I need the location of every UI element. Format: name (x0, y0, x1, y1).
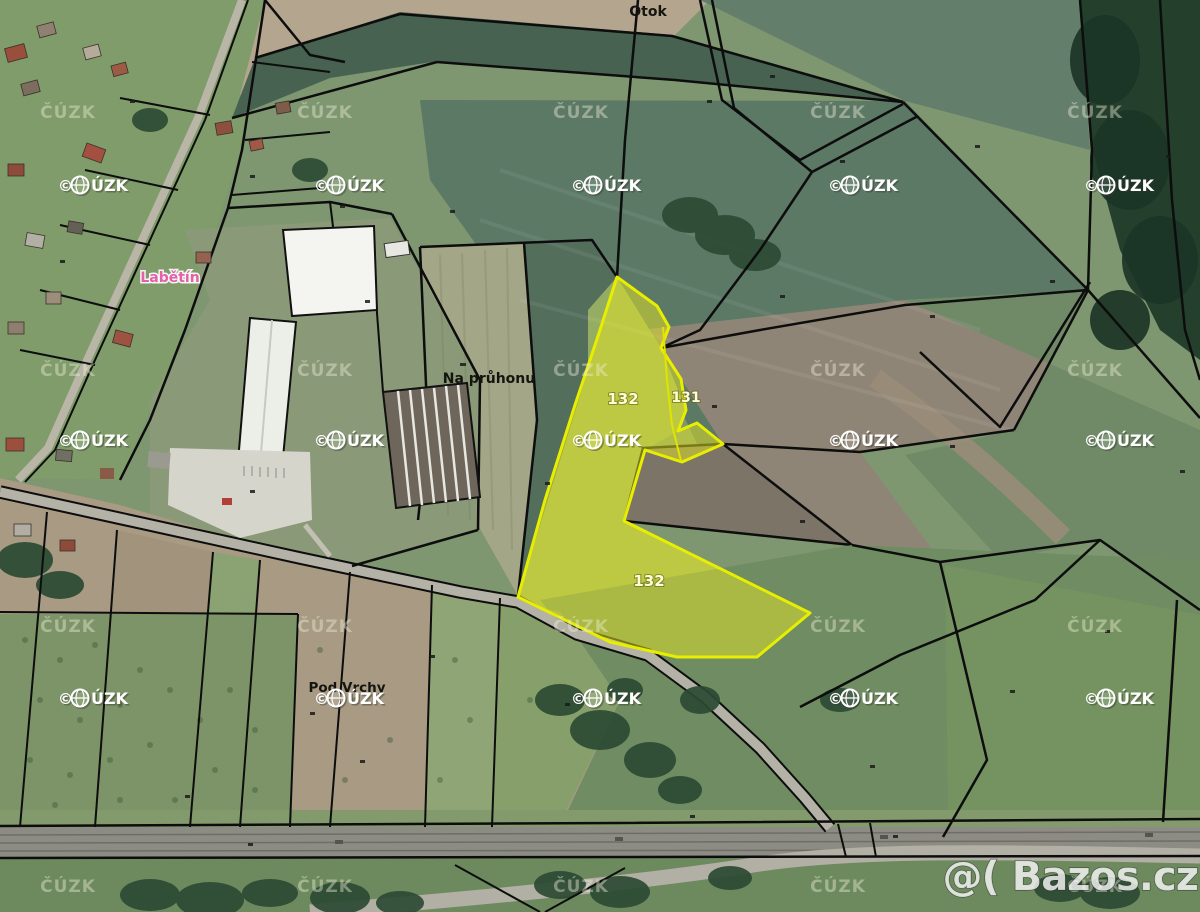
house-roof (67, 221, 84, 234)
cuzk-watermark: ČÚZK (553, 615, 609, 637)
cuzk-watermark: ČÚZK (297, 615, 353, 637)
house-roof (60, 540, 75, 551)
house-roof (196, 252, 211, 263)
tree (120, 879, 180, 911)
parcel-label-132-upper: 132 (607, 390, 638, 408)
cuzk-watermark: ČÚZK (810, 615, 866, 637)
parcel-label-132-lower: 132 (633, 572, 664, 590)
house-roof (249, 139, 264, 151)
cuzk-watermark: ČÚZK (553, 359, 609, 381)
cuzk-watermark: ČÚZK (1067, 615, 1123, 637)
cuzk-watermark: ČÚZK (40, 359, 96, 381)
place-label-labetin: Labětín (140, 270, 199, 286)
cuzk-watermark: ČÚZK (297, 101, 353, 123)
tree (242, 879, 298, 907)
cuzk-watermark: ČÚZK (1067, 359, 1123, 381)
map-canvas: © ÚZK © ÚZK (0, 0, 1200, 912)
house-roof (25, 233, 45, 249)
house-roof (275, 101, 291, 114)
house-roof (46, 292, 61, 304)
cuzk-watermark: ČÚZK (297, 359, 353, 381)
building-shed-white (384, 240, 410, 257)
house-roof (215, 121, 233, 136)
tree (708, 866, 752, 890)
cuzk-watermark: ČÚZK (297, 875, 353, 897)
house-roof (8, 164, 24, 176)
place-label-na-pruhonu: Na průhonu (443, 370, 535, 387)
field-strip-green2 (425, 585, 500, 827)
tree (680, 686, 720, 714)
cuzk-watermark: ČÚZK (810, 359, 866, 381)
cuzk-watermark: ČÚZK (810, 875, 866, 897)
house-roof (14, 524, 31, 536)
tree (570, 710, 630, 750)
place-label-otok: Otok (629, 4, 667, 20)
building-shed-grey (147, 451, 170, 469)
cuzk-watermark: ČÚZK (553, 875, 609, 897)
tree (624, 742, 676, 778)
parcel-label-131: 131 (671, 390, 700, 406)
building-white-hall (283, 226, 377, 316)
cuzk-watermark: ČÚZK (40, 875, 96, 897)
tree (132, 108, 168, 132)
bazos-watermark: @( Bazos.cz (943, 854, 1198, 900)
tree (658, 776, 702, 804)
red-container (222, 498, 232, 505)
cuzk-watermark: ČÚZK (810, 101, 866, 123)
tree (36, 571, 84, 599)
building-shed (100, 468, 114, 479)
house-roof (6, 438, 24, 451)
house-roof (8, 322, 24, 334)
cuzk-watermark: ČÚZK (1067, 101, 1123, 123)
cuzk-watermark: ČÚZK (40, 101, 96, 123)
cuzk-watermark: ČÚZK (40, 615, 96, 637)
cadastral-map-image[interactable]: © ÚZK © ÚZK (0, 0, 1200, 912)
cuzk-watermark: ČÚZK (553, 101, 609, 123)
